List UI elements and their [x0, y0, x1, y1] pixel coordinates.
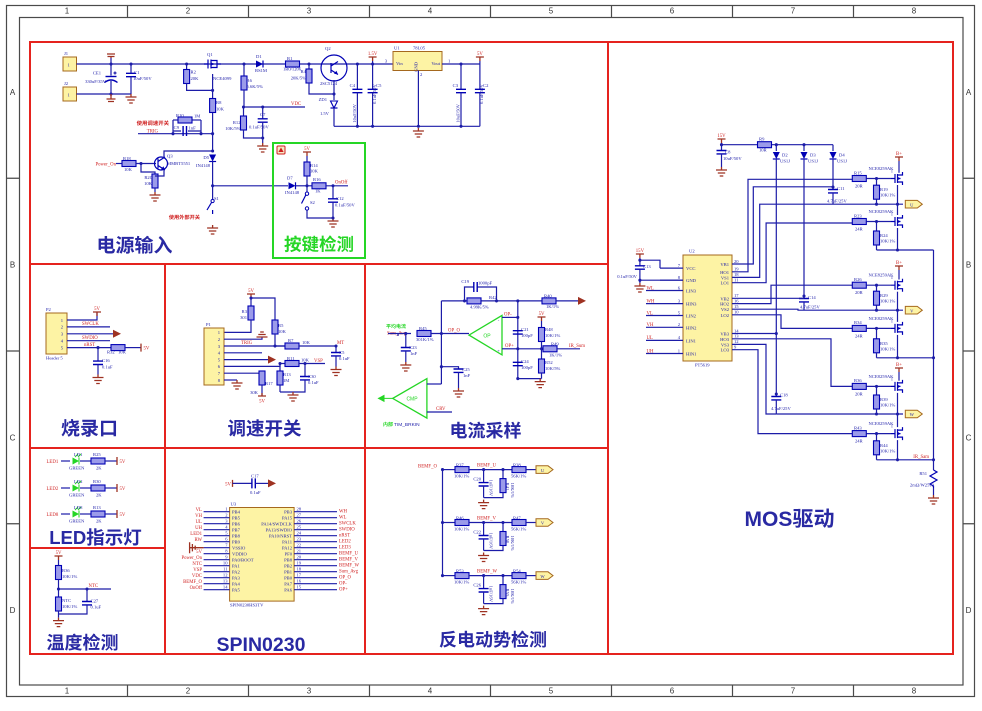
svg-text:D: D — [966, 606, 972, 615]
svg-text:R44: R44 — [880, 443, 888, 448]
svg-text:B: B — [966, 261, 971, 270]
svg-text:OP: OP — [483, 334, 491, 340]
svg-text:10K/1%: 10K/1% — [880, 448, 895, 453]
svg-text:4.7uF/25V: 4.7uF/25V — [827, 199, 847, 204]
svg-text:B+: B+ — [896, 261, 902, 266]
svg-text:P2: P2 — [46, 307, 52, 312]
svg-text:12: 12 — [223, 573, 228, 578]
svg-text:28: 28 — [297, 507, 302, 512]
svg-text:HO1: HO1 — [720, 270, 730, 275]
svg-text:C: C — [966, 433, 972, 442]
svg-text:R48: R48 — [545, 327, 553, 332]
svg-text:US1J: US1J — [780, 159, 790, 164]
svg-text:VL: VL — [647, 311, 653, 316]
svg-text:10K/1%: 10K/1% — [62, 574, 77, 579]
svg-text:1K/1%: 1K/1% — [549, 353, 562, 358]
svg-text:7: 7 — [791, 687, 796, 696]
svg-text:301K/1%: 301K/1% — [416, 337, 434, 342]
svg-text:R34: R34 — [854, 320, 862, 325]
svg-text:C23: C23 — [409, 345, 417, 350]
svg-text:R4: R4 — [301, 69, 307, 74]
svg-text:US1J: US1J — [808, 159, 818, 164]
svg-text:R29: R29 — [880, 293, 888, 298]
svg-text:LO3: LO3 — [721, 348, 730, 353]
svg-text:C: C — [10, 433, 16, 442]
svg-text:PB8: PB8 — [284, 558, 293, 563]
svg-text:10K: 10K — [124, 167, 133, 172]
svg-text:PA6: PA6 — [284, 588, 292, 593]
svg-text:R20: R20 — [144, 175, 152, 180]
svg-text:19: 19 — [297, 561, 302, 566]
svg-text:Power_On: Power_On — [181, 556, 202, 561]
svg-text:LO1: LO1 — [721, 281, 730, 286]
svg-text:BEMF_V: BEMF_V — [477, 517, 496, 522]
svg-text:R36: R36 — [854, 378, 862, 383]
svg-text:BEMF_W: BEMF_W — [339, 564, 359, 569]
svg-text:24: 24 — [297, 531, 302, 536]
svg-text:21: 21 — [297, 549, 302, 554]
svg-text:5V: 5V — [477, 52, 483, 57]
svg-text:20: 20 — [734, 259, 739, 264]
svg-text:OnOff: OnOff — [335, 181, 348, 186]
svg-text:C16: C16 — [102, 358, 110, 363]
svg-text:5V: 5V — [94, 307, 100, 312]
svg-text:OP+: OP+ — [505, 344, 514, 349]
svg-text:LED2: LED2 — [339, 540, 351, 545]
svg-text:R9: R9 — [759, 137, 765, 142]
svg-text:VL: VL — [196, 508, 202, 513]
svg-text:R41: R41 — [505, 483, 510, 491]
svg-text:0.1uF/50V: 0.1uF/50V — [372, 84, 377, 104]
svg-text:ZD1: ZD1 — [319, 97, 328, 102]
svg-text:PB9: PB9 — [232, 540, 241, 545]
svg-text:1nF/16V: 1nF/16V — [489, 480, 494, 497]
svg-text:LED: LED — [49, 527, 86, 548]
svg-text:R6: R6 — [247, 78, 253, 83]
svg-text:VDC: VDC — [192, 574, 202, 579]
svg-text:24R: 24R — [855, 333, 864, 338]
svg-text:GND: GND — [686, 278, 697, 283]
svg-text:330uF/35V: 330uF/35V — [85, 79, 107, 84]
svg-text:10K: 10K — [216, 107, 225, 112]
svg-text:LED1: LED1 — [190, 532, 202, 537]
svg-text:18: 18 — [297, 567, 302, 572]
svg-text:5: 5 — [549, 687, 554, 696]
svg-text:GREEN: GREEN — [69, 519, 85, 524]
svg-text:1R0/1206: 1R0/1206 — [283, 67, 302, 72]
svg-text:18: 18 — [734, 272, 739, 277]
svg-text:SPIN0230: SPIN0230 — [217, 634, 306, 656]
svg-text:11: 11 — [734, 278, 739, 283]
svg-text:R10: R10 — [176, 113, 184, 118]
svg-text:Power_On: Power_On — [95, 163, 116, 168]
svg-text:UH: UH — [647, 349, 654, 354]
svg-text:1M: 1M — [283, 378, 289, 383]
svg-text:LD1: LD1 — [74, 452, 83, 457]
svg-text:C26: C26 — [473, 583, 481, 588]
svg-text:3: 3 — [307, 7, 312, 16]
svg-text:C13: C13 — [643, 264, 651, 269]
svg-text:CRV: CRV — [436, 407, 446, 412]
svg-text:PA5: PA5 — [232, 588, 240, 593]
svg-text:10K: 10K — [118, 350, 127, 355]
svg-text:14: 14 — [734, 328, 739, 333]
svg-text:LO2: LO2 — [721, 313, 730, 318]
svg-text:VDC: VDC — [291, 102, 301, 107]
svg-text:10K/1%: 10K/1% — [880, 299, 895, 304]
svg-text:SPIN0230HS3TV: SPIN0230HS3TV — [230, 603, 264, 608]
svg-text:C4: C4 — [350, 83, 356, 88]
svg-text:LIN2: LIN2 — [686, 314, 697, 319]
svg-text:PB6: PB6 — [232, 522, 241, 527]
svg-text:VS3: VS3 — [721, 342, 730, 347]
svg-text:10K/5%: 10K/5% — [225, 126, 240, 131]
svg-text:J2: J2 — [64, 81, 69, 86]
svg-text:C14: C14 — [808, 295, 816, 300]
svg-text:R36: R36 — [62, 568, 70, 573]
svg-text:10K/1%: 10K/1% — [62, 604, 77, 609]
svg-text:R1: R1 — [287, 56, 293, 61]
svg-text:R45: R45 — [419, 326, 427, 331]
svg-text:WH: WH — [339, 510, 348, 515]
svg-text:P1: P1 — [206, 322, 212, 327]
svg-text:D4: D4 — [839, 153, 845, 158]
svg-text:VS2: VS2 — [721, 307, 730, 312]
svg-text:MT: MT — [337, 341, 344, 346]
svg-text:R35: R35 — [880, 341, 888, 346]
svg-text:D1: D1 — [256, 54, 262, 59]
svg-text:IN4148: IN4148 — [196, 163, 211, 168]
svg-text:BEMF_O: BEMF_O — [418, 465, 437, 470]
svg-text:19: 19 — [734, 267, 739, 272]
svg-text:2: 2 — [186, 7, 191, 16]
svg-text:VSSIO: VSSIO — [232, 546, 246, 551]
svg-text:5.6K/5%: 5.6K/5% — [247, 84, 264, 89]
svg-text:R11: R11 — [287, 356, 295, 361]
svg-text:BEMF_V: BEMF_V — [339, 558, 358, 563]
svg-text:PA1: PA1 — [232, 564, 240, 569]
svg-text:R55: R55 — [505, 589, 510, 597]
svg-text:R46: R46 — [456, 516, 464, 521]
svg-text:56K/1%: 56K/1% — [511, 474, 526, 479]
svg-text:PT5619: PT5619 — [695, 363, 710, 368]
svg-text:W: W — [910, 412, 915, 417]
svg-text:VSP: VSP — [314, 359, 323, 364]
svg-text:Q1: Q1 — [207, 52, 213, 57]
svg-text:VS1: VS1 — [721, 275, 730, 280]
svg-text:22: 22 — [297, 543, 302, 548]
svg-text:GREEN: GREEN — [69, 466, 85, 471]
svg-text:16: 16 — [297, 579, 302, 584]
svg-text:10K: 10K — [301, 358, 310, 363]
svg-text:A: A — [966, 88, 972, 97]
svg-text:2K: 2K — [96, 493, 102, 498]
svg-text:UL: UL — [196, 520, 202, 525]
svg-text:R15: R15 — [854, 170, 862, 175]
svg-text:10K/1%: 10K/1% — [454, 580, 469, 585]
svg-text:15V: 15V — [717, 134, 726, 139]
svg-text:R13: R13 — [93, 505, 101, 510]
svg-text:10K/1%: 10K/1% — [880, 346, 895, 351]
svg-text:C9: C9 — [174, 125, 180, 130]
svg-text:10: 10 — [223, 561, 228, 566]
svg-text:C18: C18 — [780, 393, 788, 398]
svg-text:78L05: 78L05 — [413, 46, 426, 51]
svg-text:1K/1%: 1K/1% — [546, 304, 559, 309]
svg-text:PB4: PB4 — [232, 510, 241, 515]
svg-text:LED2: LED2 — [47, 487, 59, 492]
svg-text:C19: C19 — [461, 279, 469, 284]
svg-text:IN4148: IN4148 — [285, 190, 300, 195]
svg-text:TRIG: TRIG — [241, 341, 253, 346]
svg-text:10uF/50V: 10uF/50V — [133, 76, 152, 81]
svg-text:C20: C20 — [473, 477, 481, 482]
svg-text:15: 15 — [297, 585, 302, 590]
svg-text:5V: 5V — [539, 312, 545, 317]
svg-text:BEMF_O: BEMF_O — [183, 580, 202, 585]
svg-text:0.1uF: 0.1uF — [102, 365, 113, 370]
svg-text:0.1uF: 0.1uF — [339, 356, 350, 361]
svg-text:5V: 5V — [144, 347, 150, 352]
svg-text:R26: R26 — [854, 277, 862, 282]
svg-text:C3: C3 — [453, 83, 459, 88]
svg-text:S1: S1 — [214, 196, 220, 201]
svg-text:PA2: PA2 — [232, 570, 240, 575]
svg-text:MMBT5551: MMBT5551 — [167, 161, 191, 166]
svg-text:Sum_Avg: Sum_Avg — [339, 570, 359, 575]
svg-text:16: 16 — [734, 298, 739, 303]
svg-text:BEMF_U: BEMF_U — [477, 464, 496, 469]
svg-text:R39: R39 — [880, 397, 888, 402]
svg-text:RW: RW — [195, 538, 203, 543]
svg-text:TIM_BRKIN: TIM_BRKIN — [394, 422, 420, 428]
svg-text:BEMF_W: BEMF_W — [477, 570, 497, 575]
svg-text:OnOff: OnOff — [190, 586, 203, 591]
svg-text:nRST: nRST — [339, 534, 350, 539]
svg-text:OP+: OP+ — [339, 588, 348, 593]
svg-text:1nF: 1nF — [410, 351, 418, 356]
svg-text:2: 2 — [186, 687, 191, 696]
svg-text:5: 5 — [549, 7, 554, 16]
svg-text:VSP: VSP — [193, 568, 202, 573]
svg-text:R43: R43 — [854, 425, 862, 430]
svg-text:8: 8 — [912, 687, 917, 696]
svg-text:27: 27 — [297, 513, 302, 518]
svg-text:R16: R16 — [313, 177, 321, 182]
svg-text:56K/1%: 56K/1% — [511, 580, 526, 585]
svg-text:HIN2: HIN2 — [686, 325, 697, 330]
svg-text:WL: WL — [339, 516, 347, 521]
svg-text:10K: 10K — [144, 181, 153, 186]
svg-text:5V: 5V — [120, 487, 126, 492]
svg-text:VH: VH — [647, 323, 654, 328]
svg-text:1: 1 — [65, 687, 70, 696]
svg-text:7: 7 — [791, 7, 796, 16]
svg-text:5V: 5V — [304, 147, 310, 152]
svg-text:VCC: VCC — [686, 266, 695, 271]
svg-text:SWDIO: SWDIO — [82, 336, 98, 341]
svg-text:S2: S2 — [310, 200, 316, 205]
svg-text:C11: C11 — [837, 186, 845, 191]
svg-text:0.1uF/50V: 0.1uF/50V — [479, 84, 484, 104]
svg-text:10K/1%: 10K/1% — [880, 403, 895, 408]
svg-text:8: 8 — [912, 7, 917, 16]
svg-text:R54: R54 — [513, 569, 521, 574]
svg-text:0.1uF/50V: 0.1uF/50V — [335, 203, 355, 208]
svg-text:11: 11 — [223, 567, 228, 572]
svg-text:D2: D2 — [782, 153, 788, 158]
svg-text:B+: B+ — [896, 363, 902, 368]
svg-text:IR_Sam: IR_Sam — [913, 455, 929, 460]
svg-text:R5: R5 — [278, 323, 284, 328]
svg-text:R30: R30 — [93, 479, 101, 484]
svg-text:B+: B+ — [896, 152, 902, 157]
svg-text:PF0: PF0 — [285, 552, 293, 557]
svg-text:LIN3: LIN3 — [686, 289, 697, 294]
svg-text:15: 15 — [734, 304, 739, 309]
svg-text:4: 4 — [428, 7, 433, 16]
svg-text:4.99K/5%: 4.99K/5% — [470, 305, 489, 310]
svg-text:R24: R24 — [880, 233, 888, 238]
svg-text:R40: R40 — [544, 294, 552, 299]
svg-text:HIN3: HIN3 — [686, 302, 697, 307]
svg-text:NTC: NTC — [62, 598, 71, 603]
svg-text:VH: VH — [195, 514, 202, 519]
svg-text:R50: R50 — [505, 536, 510, 544]
svg-text:0.1uF/50V: 0.1uF/50V — [617, 274, 637, 279]
svg-text:4: 4 — [428, 687, 433, 696]
svg-text:VB3: VB3 — [720, 332, 729, 337]
svg-text:6: 6 — [670, 687, 675, 696]
svg-text:301: 301 — [240, 315, 248, 320]
svg-text:HIN1: HIN1 — [686, 352, 697, 357]
svg-text:1.5V: 1.5V — [320, 111, 330, 116]
svg-text:LED3: LED3 — [339, 546, 351, 551]
svg-text:23: 23 — [297, 537, 302, 542]
svg-text:R51: R51 — [919, 471, 927, 476]
svg-text:PB5: PB5 — [232, 516, 241, 521]
svg-text:4.7uF/25V: 4.7uF/25V — [800, 305, 820, 310]
svg-text:OP-: OP- — [339, 582, 347, 587]
svg-text:OP_O: OP_O — [448, 329, 461, 334]
svg-text:Vin: Vin — [396, 61, 403, 66]
svg-text:U2: U2 — [689, 249, 695, 254]
svg-text:J1: J1 — [64, 51, 69, 56]
svg-text:1nF: 1nF — [463, 373, 471, 378]
svg-text:10K/1%: 10K/1% — [545, 333, 560, 338]
svg-text:10K: 10K — [302, 340, 311, 345]
svg-text:W: W — [540, 574, 545, 579]
svg-text:OP_O: OP_O — [339, 576, 352, 581]
svg-text:U3: U3 — [231, 502, 237, 507]
svg-text:20K: 20K — [191, 76, 200, 81]
svg-text:PA3: PA3 — [232, 576, 240, 581]
svg-text:4.7uF/25V: 4.7uF/25V — [771, 406, 791, 411]
svg-text:R25: R25 — [93, 452, 101, 457]
svg-text:5V: 5V — [120, 513, 126, 518]
svg-text:US1J: US1J — [837, 159, 847, 164]
svg-text:20K/5%: 20K/5% — [291, 76, 306, 81]
svg-text:LED1: LED1 — [47, 460, 59, 465]
svg-text:2mΩ/W2512: 2mΩ/W2512 — [910, 483, 935, 488]
svg-text:CMP: CMP — [406, 397, 418, 403]
svg-text:B: B — [10, 261, 15, 270]
svg-text:1nF: 1nF — [189, 126, 197, 131]
svg-text:WL: WL — [647, 286, 655, 291]
svg-text:R7: R7 — [288, 338, 294, 343]
svg-text:Q2: Q2 — [325, 46, 331, 51]
svg-text:10R: 10R — [759, 148, 768, 153]
svg-text:LIN1: LIN1 — [686, 338, 697, 343]
svg-text:OP-: OP- — [504, 312, 512, 317]
svg-text:C5: C5 — [339, 350, 345, 355]
svg-text:PB2: PB2 — [284, 564, 293, 569]
svg-text:30K: 30K — [250, 390, 259, 395]
svg-text:R19: R19 — [880, 187, 888, 192]
svg-text:R37: R37 — [456, 463, 464, 468]
svg-text:20R: 20R — [855, 184, 864, 189]
svg-text:Q3: Q3 — [167, 154, 173, 159]
svg-text:10K/1%: 10K/1% — [880, 239, 895, 244]
svg-text:A: A — [10, 88, 16, 97]
svg-text:U1: U1 — [394, 46, 400, 51]
svg-text:SWCLK: SWCLK — [339, 522, 356, 527]
svg-text:10uF/50V: 10uF/50V — [456, 103, 461, 122]
svg-text:CE1: CE1 — [93, 71, 102, 76]
svg-text:5V: 5V — [120, 460, 126, 465]
svg-text:100pF: 100pF — [521, 365, 533, 370]
svg-text:C24: C24 — [521, 359, 529, 364]
svg-text:10K/1%: 10K/1% — [880, 193, 895, 198]
svg-text:VB1: VB1 — [720, 262, 729, 267]
svg-text:C8: C8 — [725, 150, 731, 155]
svg-text:PB0: PB0 — [284, 576, 293, 581]
svg-text:GREEN: GREEN — [69, 493, 85, 498]
svg-text:0.1uF/50V: 0.1uF/50V — [249, 125, 269, 130]
svg-text:56K/1%: 56K/1% — [511, 527, 526, 532]
svg-text:D3: D3 — [810, 153, 816, 158]
svg-text:2K: 2K — [96, 466, 102, 471]
svg-text:1nF/16V: 1nF/16V — [489, 586, 494, 603]
svg-text:13: 13 — [223, 579, 228, 584]
svg-text:20R: 20R — [855, 391, 864, 396]
svg-text:10uF/50V: 10uF/50V — [352, 103, 357, 122]
svg-text:R47: R47 — [513, 516, 521, 521]
svg-text:C7: C7 — [260, 112, 266, 117]
svg-text:PA15: PA15 — [282, 516, 293, 521]
svg-text:17: 17 — [297, 573, 302, 578]
svg-text:nRST: nRST — [84, 343, 95, 348]
svg-text:R8: R8 — [216, 100, 222, 105]
svg-text:Header 5: Header 5 — [46, 356, 63, 361]
svg-text:0.1uF: 0.1uF — [308, 380, 319, 385]
svg-text:HO3: HO3 — [720, 337, 730, 342]
svg-text:10K/1%: 10K/1% — [454, 527, 469, 532]
svg-text:PA10/NRST: PA10/NRST — [269, 534, 292, 539]
svg-text:MOS: MOS — [745, 508, 793, 531]
svg-text:IR_Sum: IR_Sum — [569, 344, 585, 349]
svg-text:PA4: PA4 — [232, 582, 240, 587]
svg-text:D: D — [10, 606, 16, 615]
svg-text:R49: R49 — [551, 342, 559, 347]
svg-text:0.1uF: 0.1uF — [250, 490, 261, 495]
svg-text:C21: C21 — [521, 327, 529, 332]
svg-text:GND: GND — [414, 61, 419, 72]
svg-text:C30: C30 — [308, 374, 316, 379]
svg-text:R18: R18 — [123, 156, 131, 161]
svg-text:C17: C17 — [251, 474, 259, 479]
svg-text:14: 14 — [223, 585, 228, 590]
